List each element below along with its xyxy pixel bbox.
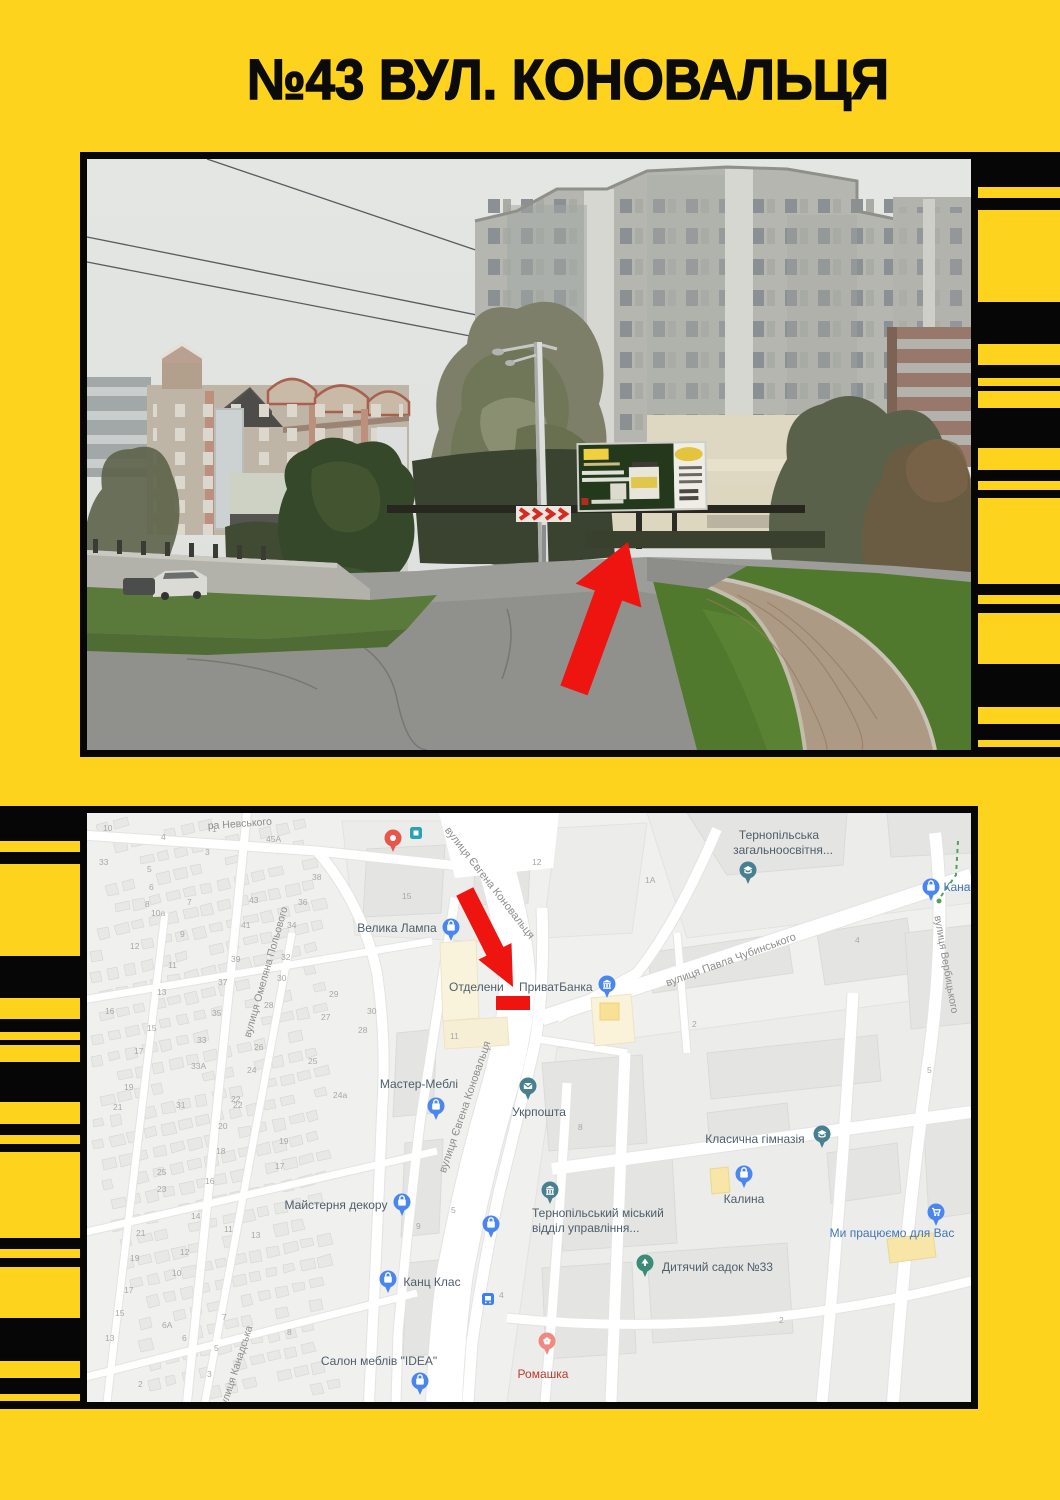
- svg-text:21: 21: [136, 1228, 146, 1238]
- svg-text:7: 7: [187, 897, 192, 907]
- svg-text:6A: 6A: [162, 1320, 173, 1330]
- svg-text:11: 11: [224, 1224, 233, 1234]
- svg-text:43: 43: [249, 895, 259, 905]
- svg-text:Ромашка: Ромашка: [518, 1367, 569, 1381]
- svg-text:17: 17: [275, 1161, 285, 1171]
- svg-text:16: 16: [105, 1006, 115, 1016]
- svg-text:ПриватБанка: ПриватБанка: [519, 980, 593, 994]
- svg-text:12: 12: [130, 941, 140, 951]
- svg-text:4: 4: [855, 935, 860, 945]
- svg-text:24a: 24a: [333, 1090, 347, 1100]
- svg-text:15: 15: [115, 1308, 125, 1318]
- svg-text:9: 9: [416, 1221, 421, 1231]
- svg-text:Дитячий садок №33: Дитячий садок №33: [662, 1260, 773, 1274]
- svg-text:30: 30: [367, 1006, 377, 1016]
- svg-text:Укрпошта: Укрпошта: [512, 1105, 566, 1119]
- svg-text:5: 5: [214, 1343, 219, 1353]
- svg-text:18: 18: [216, 1146, 226, 1156]
- svg-text:19: 19: [130, 1253, 140, 1263]
- svg-text:3: 3: [207, 1369, 212, 1379]
- svg-text:відділ управління...: відділ управління...: [532, 1221, 639, 1235]
- svg-text:39: 39: [231, 954, 241, 964]
- svg-text:25: 25: [308, 1056, 318, 1066]
- svg-text:загальноосвітня...: загальноосвітня...: [733, 843, 833, 857]
- svg-text:Калина: Калина: [724, 1192, 765, 1206]
- svg-text:36: 36: [298, 897, 308, 907]
- svg-text:5: 5: [147, 864, 152, 874]
- svg-text:13: 13: [105, 1333, 115, 1343]
- svg-text:7: 7: [222, 1312, 227, 1322]
- svg-text:5: 5: [927, 1065, 932, 1075]
- svg-text:3: 3: [205, 847, 210, 857]
- svg-text:28: 28: [264, 1000, 274, 1010]
- svg-text:34: 34: [287, 920, 297, 930]
- svg-text:22: 22: [233, 1100, 243, 1110]
- svg-text:28: 28: [358, 1025, 368, 1035]
- svg-text:2: 2: [779, 1315, 784, 1325]
- svg-text:2: 2: [138, 1379, 143, 1389]
- svg-text:24: 24: [247, 1065, 257, 1075]
- svg-text:8: 8: [578, 1122, 583, 1132]
- svg-text:Тернопільський міський: Тернопільський міський: [532, 1206, 664, 1220]
- svg-text:17: 17: [124, 1285, 134, 1295]
- svg-text:Ми працюємо для Вас: Ми працюємо для Вас: [830, 1226, 955, 1240]
- svg-text:16: 16: [205, 1176, 215, 1186]
- svg-text:21: 21: [113, 1102, 123, 1112]
- svg-text:41: 41: [241, 920, 251, 930]
- svg-text:32: 32: [281, 952, 291, 962]
- svg-text:17: 17: [134, 1046, 144, 1056]
- svg-text:11: 11: [450, 1031, 459, 1041]
- svg-text:5: 5: [451, 1205, 456, 1215]
- svg-text:38: 38: [312, 872, 322, 882]
- svg-text:10: 10: [172, 1268, 182, 1278]
- svg-text:45A: 45A: [266, 834, 281, 844]
- svg-text:9: 9: [180, 929, 185, 939]
- svg-text:Велика Лампа: Велика Лампа: [357, 921, 437, 935]
- svg-text:Кана: Кана: [944, 880, 971, 894]
- svg-text:8: 8: [287, 1327, 292, 1337]
- svg-text:30: 30: [277, 973, 287, 983]
- svg-text:13: 13: [157, 987, 167, 997]
- svg-text:31: 31: [176, 1100, 186, 1110]
- svg-text:Отделени: Отделени: [449, 980, 504, 994]
- svg-text:26: 26: [254, 1042, 264, 1052]
- svg-text:Канц Клас: Канц Клас: [403, 1275, 460, 1289]
- svg-text:19: 19: [124, 1082, 134, 1092]
- svg-text:4: 4: [499, 1290, 504, 1300]
- svg-text:25: 25: [157, 1167, 167, 1177]
- svg-text:23: 23: [157, 1184, 167, 1194]
- svg-text:1А: 1А: [645, 875, 656, 885]
- svg-text:19: 19: [279, 1136, 289, 1146]
- svg-text:Мастер-Меблі: Мастер-Меблі: [380, 1077, 458, 1091]
- svg-text:27: 27: [321, 1012, 331, 1022]
- svg-text:33: 33: [197, 1035, 207, 1045]
- svg-text:Класична гімназія: Класична гімназія: [705, 1132, 804, 1146]
- svg-text:Салон меблів "IDEA": Салон меблів "IDEA": [321, 1354, 437, 1368]
- svg-text:37: 37: [218, 977, 228, 987]
- svg-text:Тернопільська: Тернопільська: [739, 828, 819, 842]
- svg-text:10a: 10a: [151, 908, 165, 918]
- svg-text:29: 29: [329, 989, 339, 999]
- svg-text:20: 20: [218, 1121, 228, 1131]
- svg-text:6: 6: [182, 1333, 187, 1343]
- svg-text:15: 15: [402, 891, 412, 901]
- svg-text:8: 8: [145, 899, 150, 909]
- svg-text:1: 1: [212, 824, 217, 834]
- svg-text:12: 12: [532, 857, 542, 867]
- svg-text:35: 35: [212, 1008, 222, 1018]
- svg-text:33: 33: [99, 857, 109, 867]
- svg-text:Майстерня декору: Майстерня декору: [285, 1198, 388, 1212]
- svg-text:13: 13: [251, 1230, 261, 1240]
- svg-text:33A: 33A: [191, 1061, 206, 1071]
- svg-text:4: 4: [161, 832, 166, 842]
- svg-text:10: 10: [103, 823, 113, 833]
- svg-text:15: 15: [147, 1023, 157, 1033]
- svg-text:12: 12: [180, 1247, 190, 1257]
- svg-text:6: 6: [149, 882, 154, 892]
- svg-text:2: 2: [692, 1019, 697, 1029]
- svg-text:14: 14: [191, 1211, 201, 1221]
- svg-text:11: 11: [168, 960, 177, 970]
